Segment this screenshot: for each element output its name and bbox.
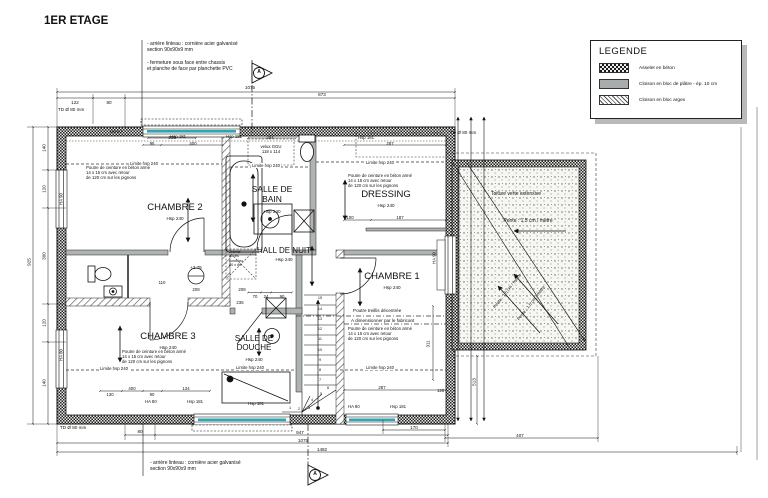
win-label: HA 80	[348, 404, 360, 409]
legend-label: Asselet en béton	[639, 66, 675, 71]
stair-step-13: 13	[318, 317, 322, 321]
stair-step-8: 8	[319, 368, 321, 372]
legend-item-beton: Asselet en béton	[599, 63, 733, 73]
win-label: HA 80	[145, 399, 157, 404]
dim-right-128: 128	[437, 388, 444, 393]
dim-bottom-947: 947	[296, 430, 304, 435]
limite-c1: Limite hsp 240	[365, 365, 395, 370]
dim-right-513: 513	[471, 378, 476, 386]
dim-bottom-1482: 1482	[317, 447, 327, 452]
dim-400: 400	[189, 141, 196, 146]
dim-110: 110	[159, 280, 166, 285]
legend-item-argex: Cloison en bloc argex	[599, 95, 733, 105]
legend-box: LEGENDE Asselet en béton Cloison en bloc…	[590, 40, 742, 119]
win-label: HA 90	[110, 129, 122, 134]
roof-pente: Pente : 1.5 cm / mètre	[503, 219, 552, 225]
room-douche-hsp: Hsp 240	[245, 357, 262, 362]
dim-top-80: 80	[106, 100, 111, 105]
win-label: Hsp 181	[358, 135, 374, 140]
dim-134: 134	[182, 386, 189, 391]
dim-top-122: 122	[71, 100, 79, 105]
dim-294: 294	[266, 135, 273, 140]
toilet-bath	[299, 135, 315, 162]
win-label: HA 80	[58, 349, 63, 361]
dim-400-c3: 400	[128, 386, 135, 391]
room-dressing: DRESSING	[361, 189, 411, 200]
swatch-platre	[599, 79, 629, 89]
dim-bottom-80: 80	[137, 429, 142, 434]
stair-step-12: 12	[318, 327, 322, 331]
dim-left-300: 300	[41, 252, 46, 260]
room-bain: SALLE DE BAIN	[252, 184, 293, 204]
stair-step-6: 6	[327, 386, 329, 390]
dim-70: 70	[253, 294, 258, 299]
win-label: Hsp 181	[226, 134, 242, 139]
win-label: HA 90	[58, 193, 63, 205]
stair-step-11: 11	[318, 337, 322, 341]
stair-step-7: 7	[319, 378, 321, 382]
legend-item-platre: Cloison en bloc de plâtre - ép. 10 cm	[599, 79, 733, 89]
dim-130: 130	[106, 392, 113, 397]
level-label: +2.75	[190, 265, 202, 270]
dimensionner-note: A dimensionner par le fabricant	[350, 318, 415, 323]
dim-left-120: 120	[41, 185, 46, 193]
stair-step-10: 10	[318, 348, 322, 352]
td-top-right: TD Ø 80 mm	[450, 130, 476, 135]
td-bottom-left: TD Ø 80 mm	[60, 425, 86, 430]
room-chambre1: CHAMBRE 1	[364, 271, 419, 282]
limite-douche: Limite hsp 240	[235, 365, 265, 370]
room-hall-hsp: Hsp 240	[275, 257, 292, 262]
limite-bain: Limite hsp 240	[251, 163, 281, 168]
page-title: 1ER ETAGE	[44, 15, 108, 29]
dim-187: 187	[396, 215, 403, 220]
legend-label: Cloison en bloc de plâtre - ép. 10 cm	[639, 82, 717, 87]
stair-step-9: 9	[319, 358, 321, 362]
dim-100: 100	[346, 215, 353, 220]
note-bottom: - arrière linteau : cornière acier galva…	[150, 461, 241, 473]
section-marker-label-top: A	[257, 70, 261, 76]
win-label: Hsp 181	[248, 401, 264, 406]
dim-90: 90	[280, 294, 285, 299]
swatch-beton	[599, 63, 629, 73]
room-chambre2-hsp: Hsp 240	[166, 216, 183, 221]
dim-bottom-170: 170	[410, 425, 418, 430]
dim-bottom-407: 407	[516, 433, 524, 438]
room-bain-hsp: Hsp 240	[263, 209, 280, 214]
stair-step-5: 5	[320, 392, 322, 396]
dim-208-douche: 208	[238, 287, 245, 292]
poutre-note-c3: Poutre de ceinture en béton armé 14 x 15…	[122, 349, 186, 364]
stair-step-14: 14	[318, 307, 322, 311]
dim-287-bottom: 287	[378, 385, 385, 390]
dim-287: 287	[386, 141, 393, 146]
room-chambre2: CHAMBRE 2	[147, 202, 202, 213]
limite-dressing: Limite hsp 240	[365, 160, 395, 165]
dim-left-140b: 140	[41, 379, 46, 387]
dim-90-c3: 90	[150, 392, 155, 397]
floor-plan-page: 1ER ETAGE - arrière linteau : cornière a…	[0, 0, 768, 498]
dim-24: 24	[264, 294, 269, 299]
room-chambre1-hsp: Hsp 240	[383, 285, 400, 290]
room-chambre3: CHAMBRE 3	[140, 331, 195, 342]
dim-left-140: 140	[41, 144, 46, 152]
dim-236: 236	[236, 300, 243, 305]
dim-right-311: 311	[425, 341, 430, 348]
velux-note: velux GGU 118 x 114	[260, 144, 281, 154]
stair-step-2: 2	[298, 407, 300, 411]
note-top-1: - arrière linteau : cornière acier galva…	[147, 42, 238, 54]
win-label: Hsp 181	[187, 399, 203, 404]
td-top-left: TD Ø 80 mm	[58, 107, 84, 112]
section-marker-label-bottom: A	[313, 472, 317, 478]
win-label: Hsp 181	[390, 404, 406, 409]
room-douche: SALLE DE DOUCHE	[235, 334, 273, 353]
legend-title: LEGENDE	[599, 46, 733, 57]
dim-top-1075: 1075	[245, 85, 255, 90]
room-hall: HALL DE NUIT	[257, 246, 311, 255]
poutre-treillis-note: Poutre treillis décentrée	[352, 308, 402, 313]
room-dressing-hsp: Hsp 240	[377, 203, 394, 208]
poutre-note-c2: Poutre de ceinture en béton armé 14 x 15…	[86, 165, 150, 180]
dim-208-c3: 208	[192, 287, 199, 292]
stair-step-1: 1	[289, 406, 291, 410]
dim-95: 95	[150, 141, 155, 146]
dim-top-873: 873	[318, 92, 326, 97]
tremie-note: Trémie accès combles 80 x 80	[229, 250, 243, 268]
dim-left-120b: 120	[41, 319, 46, 327]
limite-c3: Limite hsp 240	[99, 366, 129, 371]
legend-label: Cloison en bloc argex	[639, 98, 685, 103]
stair-step-4: 4	[311, 398, 313, 402]
dim-230: 230	[168, 135, 175, 140]
poutre-note-dressing: Poutre de ceinture en béton armé 14 x 15…	[348, 173, 412, 188]
note-top-2: - fermeture sous face entre chassis et p…	[147, 61, 233, 73]
win-label: HA 90	[431, 252, 436, 264]
stair-step-15: 15	[318, 296, 322, 300]
poutre-note-c1: Poutre de ceinture en béton armé 14 x 15…	[348, 326, 412, 341]
stair-step-3: 3	[308, 406, 310, 410]
green-roof	[446, 153, 596, 356]
swatch-argex	[599, 95, 629, 105]
roof-title: Toiture verte extensive	[491, 192, 541, 198]
dim-bottom-1075: 1075	[298, 438, 308, 443]
dim-left-925: 925	[26, 258, 31, 266]
